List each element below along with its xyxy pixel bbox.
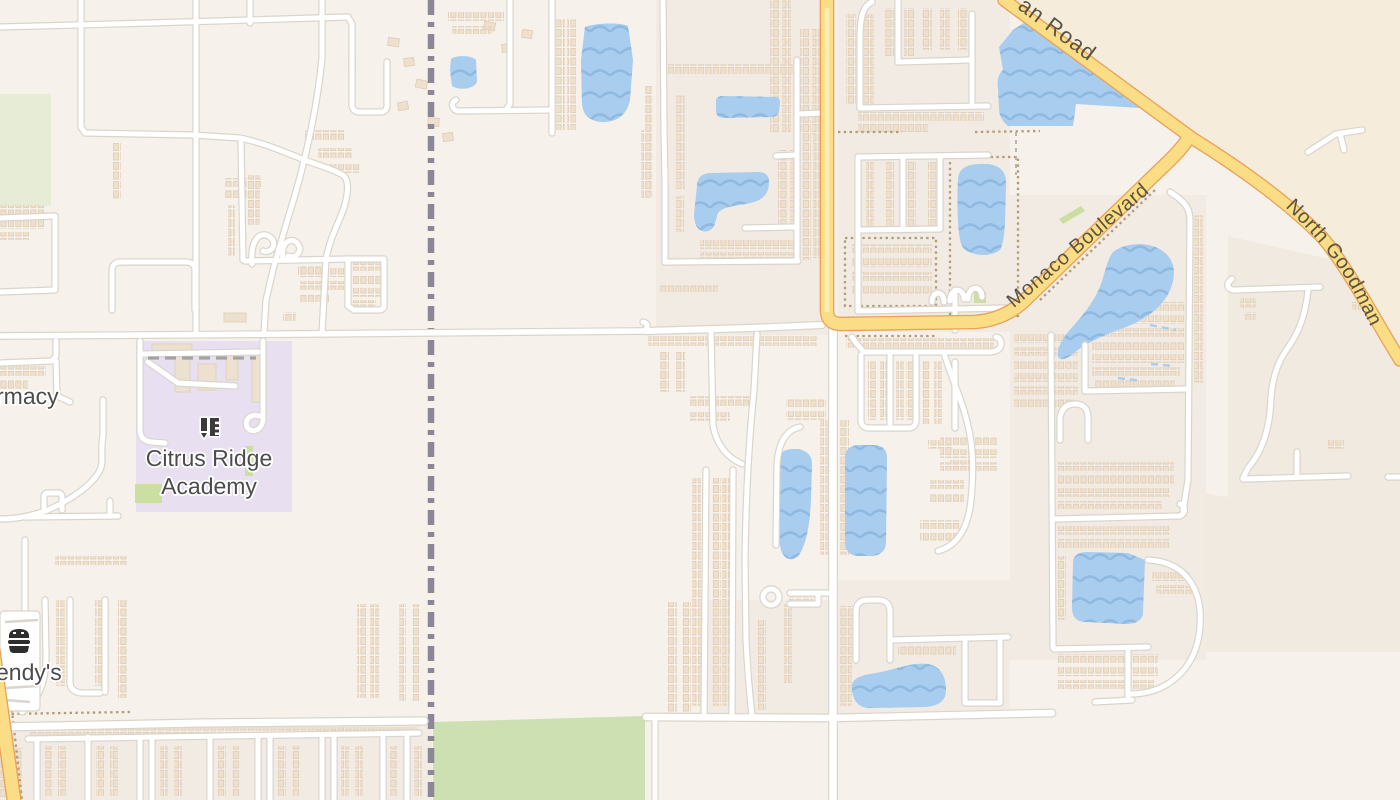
svg-text:Academy: Academy [161,473,257,499]
svg-text:endy's: endy's [0,659,62,685]
svg-text:rmacy: rmacy [0,383,59,409]
svg-text:Citrus Ridge: Citrus Ridge [146,445,273,471]
